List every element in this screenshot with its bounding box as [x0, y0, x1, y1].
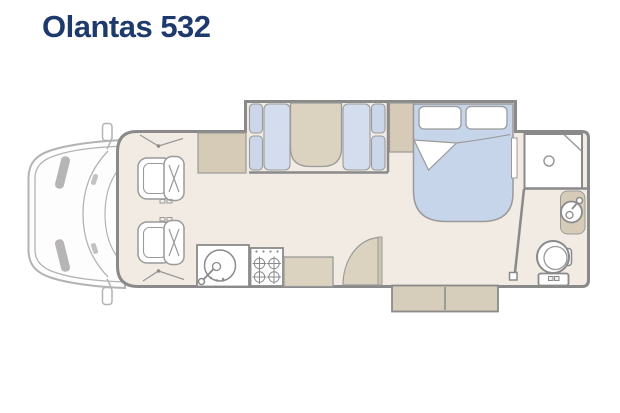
wardrobe	[390, 103, 414, 152]
dinette-bench-left	[264, 104, 290, 170]
dinette-back-cushion	[372, 104, 386, 133]
sink-faucet-knob	[199, 279, 205, 285]
dinette-table	[291, 103, 342, 167]
page: Olantas 532	[0, 0, 620, 413]
sink-dot	[216, 279, 218, 281]
overhead-cabinet	[198, 133, 246, 173]
door-leaf	[378, 237, 382, 285]
sink-dot	[222, 278, 224, 280]
pillow	[419, 107, 461, 130]
swivel-seat-rear	[138, 218, 184, 265]
sink-dot	[210, 277, 212, 279]
toilet	[537, 241, 572, 286]
basin-faucet-knob	[577, 198, 583, 204]
dinette	[250, 103, 386, 170]
dinette-bench-right	[343, 104, 370, 170]
swivel-seat-front	[138, 157, 184, 204]
cab	[29, 124, 126, 305]
bedside-shelf	[512, 138, 518, 178]
dinette-back-cushion	[250, 136, 263, 170]
kitchen-counter	[284, 257, 333, 287]
floorplan-canvas	[0, 0, 620, 413]
dinette-back-cushion	[372, 136, 386, 170]
dinette-back-cushion	[250, 104, 263, 133]
pillow	[466, 107, 507, 130]
door-pivot-mark	[510, 273, 518, 281]
double-bed	[414, 104, 514, 222]
entry-step	[392, 286, 498, 312]
